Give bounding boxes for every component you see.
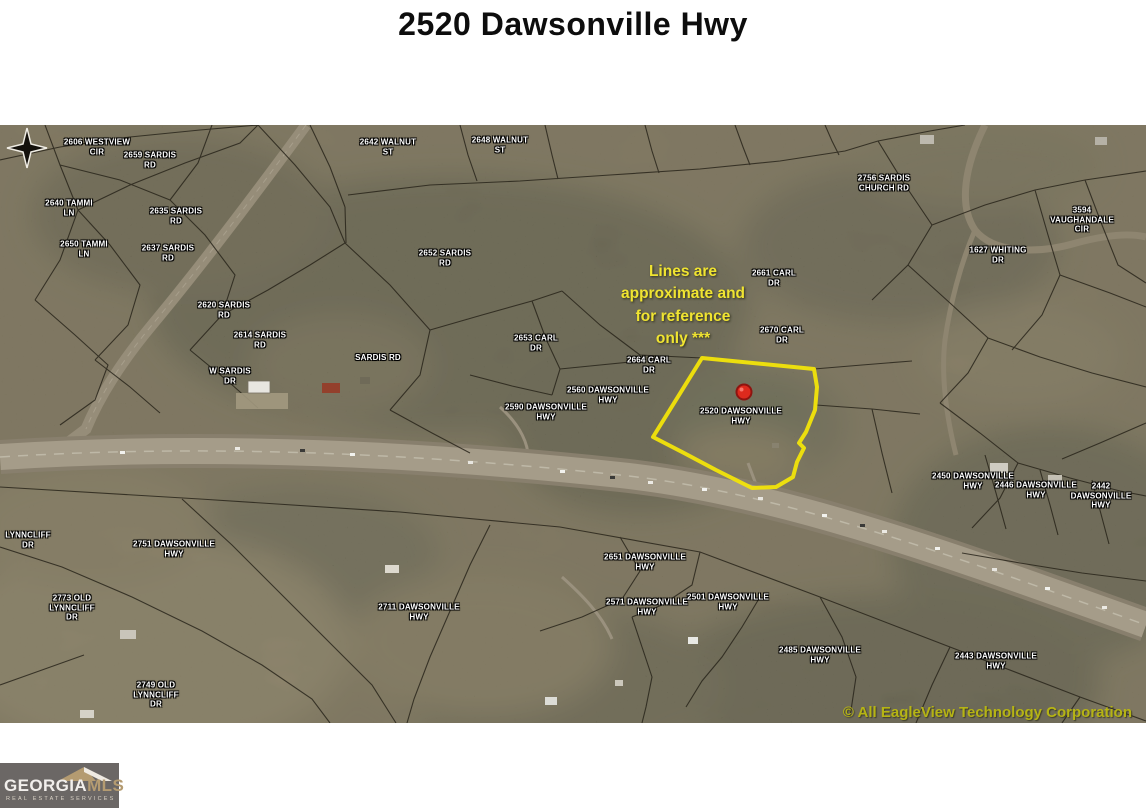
logo-tagline: REAL ESTATE SERVICES — [6, 796, 116, 802]
logo-mls-text: MLS — [87, 776, 124, 795]
page-title: 2520 Dawsonville Hwy — [0, 6, 1146, 43]
map-disclaimer-note: Lines are approximate and for reference … — [621, 261, 745, 351]
logo-georgia-text: GEORGIA — [4, 776, 87, 795]
location-pin-icon — [737, 385, 752, 400]
aerial-map-graphic — [0, 125, 1146, 723]
copyright-text: © All EagleView Technology Corporation — [843, 704, 1132, 721]
georgia-mls-logo: GEORGIAMLS REAL ESTATE SERVICES — [0, 763, 119, 808]
terrain-grain — [0, 125, 1146, 723]
aerial-map: 2606 WESTVIEW CIR 2659 SARDIS RD 2640 TA… — [0, 125, 1146, 723]
logo-wordmark: GEORGIAMLS — [4, 777, 124, 794]
listing-photo-page: 2520 Dawsonville Hwy — [0, 0, 1146, 808]
